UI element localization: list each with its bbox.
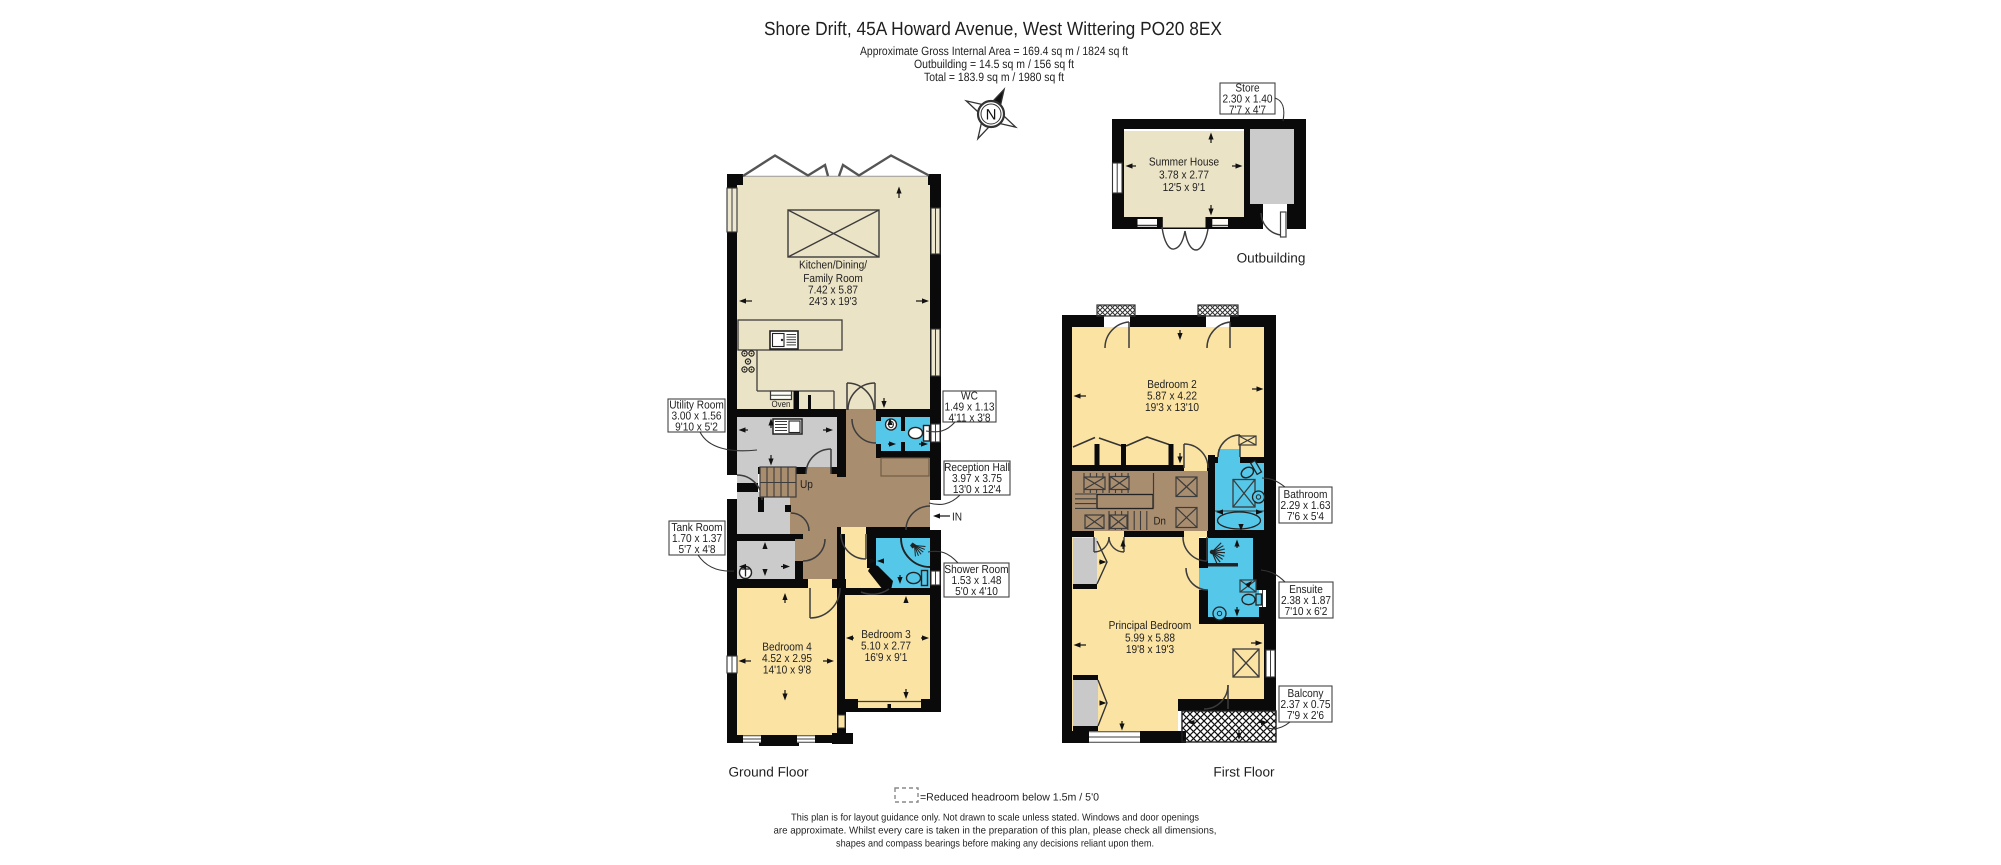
svg-text:Bedroom 4: Bedroom 4 — [762, 642, 812, 654]
svg-text:7'6 x 5'4: 7'6 x 5'4 — [1287, 511, 1325, 523]
svg-text:N: N — [986, 107, 997, 124]
svg-text:Dn: Dn — [1154, 516, 1166, 528]
svg-text:IN: IN — [952, 512, 962, 524]
svg-text:Up: Up — [800, 479, 813, 491]
svg-text:Approximate Gross Internal Are: Approximate Gross Internal Area = 169.4 … — [860, 44, 1129, 58]
svg-text:Summer House: Summer House — [1149, 157, 1219, 169]
svg-text:7.42 x 5.87: 7.42 x 5.87 — [808, 285, 858, 297]
svg-text:Shore Drift, 45A Howard Avenue: Shore Drift, 45A Howard Avenue, West Wit… — [764, 19, 1222, 40]
svg-text:7'9 x 2'6: 7'9 x 2'6 — [1287, 710, 1324, 722]
svg-text:Outbuilding: Outbuilding — [1237, 251, 1306, 266]
svg-text:shapes and compass bearings be: shapes and compass bearings before makin… — [836, 839, 1154, 850]
svg-text:5.10 x 2.77: 5.10 x 2.77 — [861, 641, 911, 653]
svg-text:5'7 x 4'8: 5'7 x 4'8 — [678, 544, 715, 556]
svg-text:Total = 183.9 sq m / 1980 sq f: Total = 183.9 sq m / 1980 sq ft — [924, 70, 1065, 84]
svg-text:4.52 x 2.95: 4.52 x 2.95 — [762, 653, 812, 665]
svg-text:Kitchen/Dining/: Kitchen/Dining/ — [799, 260, 868, 272]
svg-text:9'10 x 5'2: 9'10 x 5'2 — [675, 422, 718, 434]
svg-text:Bedroom 2: Bedroom 2 — [1147, 379, 1197, 391]
svg-text:Bedroom 3: Bedroom 3 — [861, 629, 911, 641]
svg-text:24'3 x 19'3: 24'3 x 19'3 — [809, 296, 857, 308]
svg-text:19'3 x 13'10: 19'3 x 13'10 — [1145, 402, 1199, 414]
svg-text:16'9 x 9'1: 16'9 x 9'1 — [865, 652, 908, 664]
svg-text:12'5 x 9'1: 12'5 x 9'1 — [1163, 182, 1206, 194]
svg-text:First Floor: First Floor — [1213, 765, 1275, 780]
svg-text:7'7 x 4'7: 7'7 x 4'7 — [1229, 105, 1266, 117]
svg-text:5.99 x 5.88: 5.99 x 5.88 — [1125, 633, 1175, 645]
svg-text:Oven: Oven — [772, 399, 791, 409]
svg-text:13'0 x 12'4: 13'0 x 12'4 — [953, 484, 1002, 496]
svg-text:=Reduced headroom below 1.5m /: =Reduced headroom below 1.5m / 5'0 — [920, 792, 1099, 804]
svg-text:19'8 x 19'3: 19'8 x 19'3 — [1126, 644, 1174, 656]
svg-text:3.78 x 2.77: 3.78 x 2.77 — [1159, 170, 1209, 182]
svg-text:Family Room: Family Room — [803, 273, 863, 285]
svg-text:5'0 x 4'10: 5'0 x 4'10 — [955, 586, 998, 598]
svg-text:This plan is for layout guidan: This plan is for layout guidance only. N… — [791, 813, 1199, 824]
svg-text:are approximate. Whilst every: are approximate. Whilst every care is ta… — [774, 826, 1217, 837]
svg-text:5.87 x 4.22: 5.87 x 4.22 — [1147, 391, 1197, 403]
svg-text:Ground Floor: Ground Floor — [728, 765, 809, 780]
svg-text:14'10 x 9'8: 14'10 x 9'8 — [763, 665, 811, 677]
svg-text:7'10 x 6'2: 7'10 x 6'2 — [1285, 606, 1328, 618]
svg-text:Outbuilding = 14.5 sq m / 156: Outbuilding = 14.5 sq m / 156 sq ft — [914, 57, 1075, 71]
svg-text:Principal Bedroom: Principal Bedroom — [1109, 620, 1192, 632]
